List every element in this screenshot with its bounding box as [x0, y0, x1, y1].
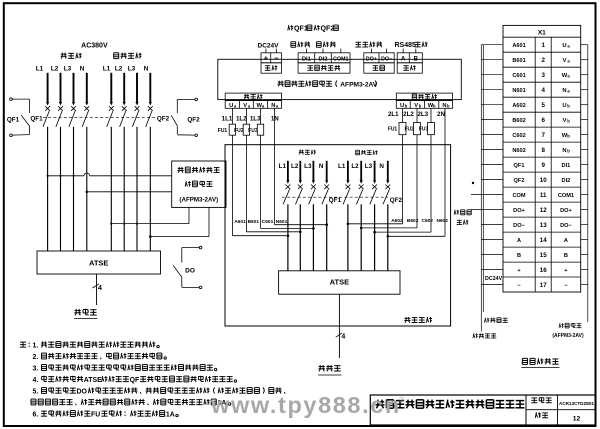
svg-text:L1: L1	[338, 163, 346, 170]
svg-text:ACR13CTDZ801: ACR13CTDZ801	[559, 401, 594, 406]
svg-text:DO: DO	[185, 268, 195, 275]
svg-text:1: 1	[541, 42, 545, 49]
svg-text:L2: L2	[291, 163, 299, 170]
svg-text:V: V	[563, 58, 567, 64]
svg-text:1A: 1A	[166, 412, 175, 419]
svg-text:X1: X1	[538, 29, 546, 36]
svg-text:U: U	[229, 103, 233, 109]
svg-text:12: 12	[573, 415, 581, 422]
svg-text:4.: 4.	[33, 377, 39, 384]
svg-text:N: N	[442, 103, 446, 109]
svg-text:www.tpy888.cn: www.tpy888.cn	[210, 392, 401, 418]
svg-text:9: 9	[541, 162, 545, 169]
svg-text:N: N	[80, 66, 85, 73]
svg-text:N: N	[562, 88, 566, 94]
svg-text:14: 14	[540, 237, 547, 244]
svg-text:QF2: QF2	[321, 25, 335, 33]
svg-text:2L1: 2L1	[388, 111, 399, 118]
svg-text:7: 7	[541, 132, 545, 139]
svg-text:®: ®	[399, 396, 405, 404]
svg-text:B: B	[564, 253, 568, 259]
svg-text:L1: L1	[279, 163, 287, 170]
svg-text:QF2: QF2	[187, 116, 200, 123]
svg-text:FU1: FU1	[218, 128, 228, 134]
svg-text:QF1: QF1	[514, 163, 525, 169]
svg-text:L1: L1	[36, 66, 44, 73]
svg-text:B602: B602	[407, 218, 419, 224]
svg-text:FU2: FU2	[234, 128, 244, 134]
svg-text:1L1: 1L1	[222, 116, 233, 123]
svg-text:2.: 2.	[33, 354, 39, 361]
svg-text:A: A	[517, 238, 521, 244]
svg-text:4: 4	[541, 87, 545, 94]
svg-text:U: U	[562, 43, 566, 49]
svg-text:QF: QF	[130, 377, 140, 384]
svg-text:C601: C601	[512, 73, 525, 79]
svg-text:DO−: DO−	[560, 223, 572, 229]
svg-text:ATSE: ATSE	[89, 258, 108, 267]
svg-text:COM1: COM1	[558, 193, 574, 199]
svg-text:C602: C602	[512, 133, 525, 139]
svg-text:b: b	[419, 103, 422, 108]
svg-text:FU1: FU1	[388, 127, 398, 133]
svg-text:QF2: QF2	[390, 197, 403, 204]
svg-text:b: b	[567, 104, 570, 109]
svg-text:AC380V: AC380V	[81, 43, 108, 50]
svg-text:N: N	[379, 163, 384, 170]
svg-text:A602: A602	[391, 218, 403, 224]
svg-text:C601: C601	[262, 219, 274, 225]
svg-text:1L2: 1L2	[236, 116, 247, 123]
svg-text:DC24V: DC24V	[258, 43, 280, 50]
svg-text:V: V	[414, 103, 418, 109]
svg-text:L2: L2	[51, 66, 59, 73]
svg-text:RS485: RS485	[395, 42, 417, 49]
svg-text:L3: L3	[365, 163, 373, 170]
svg-text:L3: L3	[128, 66, 136, 73]
svg-text:QF2: QF2	[157, 115, 170, 122]
svg-text:b: b	[567, 148, 570, 153]
svg-text:2L3: 2L3	[417, 111, 428, 118]
svg-text:13: 13	[540, 222, 547, 229]
svg-text:11: 11	[540, 192, 547, 199]
svg-text:FU3: FU3	[419, 127, 429, 133]
svg-text:3.: 3.	[33, 366, 39, 373]
svg-text:4: 4	[98, 285, 102, 292]
svg-text:DO−: DO−	[513, 223, 525, 229]
svg-text:2L2: 2L2	[403, 111, 414, 118]
svg-text:QF1: QF1	[7, 116, 20, 123]
svg-text:DI1: DI1	[562, 163, 571, 169]
svg-text:B601: B601	[248, 219, 260, 225]
svg-text:L1: L1	[103, 66, 111, 73]
svg-text:B: B	[517, 253, 521, 259]
svg-text:b: b	[405, 103, 408, 108]
svg-text:DO+: DO+	[366, 57, 377, 63]
svg-text:DO: DO	[77, 389, 88, 396]
svg-text:FU3: FU3	[248, 128, 258, 134]
svg-text:DO+: DO+	[513, 208, 525, 214]
svg-text:1N: 1N	[271, 116, 279, 123]
svg-text:N: N	[271, 103, 275, 109]
svg-text:(AFPM3-2AV): (AFPM3-2AV)	[179, 197, 218, 204]
svg-text:QF1: QF1	[30, 115, 43, 122]
svg-text:A601: A601	[234, 219, 246, 225]
svg-text:DO−: DO−	[381, 57, 392, 63]
svg-text:N602: N602	[437, 218, 449, 224]
svg-text:b: b	[433, 103, 436, 108]
svg-text:5.: 5.	[33, 389, 39, 396]
svg-text:2: 2	[541, 57, 545, 64]
svg-text:COM1: COM1	[333, 57, 348, 63]
svg-text:N: N	[319, 163, 324, 170]
svg-text:(AFPM3-2AV): (AFPM3-2AV)	[552, 333, 584, 339]
svg-text:17: 17	[540, 282, 547, 289]
svg-text:b: b	[567, 118, 570, 123]
svg-text:L3: L3	[304, 163, 312, 170]
svg-text:A: A	[564, 238, 568, 244]
svg-text:10: 10	[540, 177, 547, 184]
svg-text:FU: FU	[91, 412, 100, 419]
svg-text:B602: B602	[512, 118, 525, 124]
svg-text:2N: 2N	[437, 111, 445, 118]
svg-text:5: 5	[541, 102, 545, 109]
svg-text:B601: B601	[512, 58, 525, 64]
svg-text:L3: L3	[64, 66, 72, 73]
svg-text:−: −	[274, 53, 279, 62]
svg-text:+: +	[264, 53, 269, 62]
svg-text:b: b	[447, 103, 450, 108]
svg-text:DI1: DI1	[302, 57, 312, 63]
svg-text:12: 12	[540, 207, 547, 214]
svg-text:A601: A601	[512, 43, 525, 49]
svg-text:15: 15	[540, 252, 547, 259]
svg-text:U: U	[562, 103, 566, 109]
svg-text:DC24V: DC24V	[485, 276, 503, 282]
svg-text:b: b	[567, 133, 570, 138]
svg-text:FU2: FU2	[404, 127, 414, 133]
svg-text:QF1: QF1	[329, 197, 342, 204]
svg-text:N: N	[562, 148, 566, 154]
svg-text:AFPM3-2AV: AFPM3-2AV	[340, 81, 377, 88]
svg-text:N601: N601	[276, 219, 288, 225]
svg-text:DO+: DO+	[560, 208, 572, 214]
svg-text:N602: N602	[512, 148, 525, 154]
svg-text:QF2: QF2	[514, 178, 525, 184]
svg-text:8: 8	[541, 147, 545, 154]
svg-text:16: 16	[540, 267, 547, 274]
svg-text:4: 4	[341, 333, 345, 340]
svg-text:A602: A602	[512, 103, 525, 109]
svg-text:N: N	[144, 66, 149, 73]
svg-text:QF1: QF1	[294, 25, 308, 33]
svg-text:U: U	[400, 103, 404, 109]
svg-text:3: 3	[541, 72, 545, 79]
svg-text:B: B	[414, 57, 419, 63]
svg-text:6.: 6.	[33, 412, 39, 419]
svg-text:N601: N601	[512, 88, 525, 94]
svg-text:1.: 1.	[33, 343, 39, 350]
svg-text:V: V	[563, 118, 567, 124]
svg-text:A: A	[401, 57, 406, 63]
svg-text:COM: COM	[512, 193, 525, 199]
svg-text:ATSE: ATSE	[84, 377, 102, 384]
svg-text:DI2: DI2	[318, 57, 327, 63]
svg-text:DI2: DI2	[562, 178, 571, 184]
svg-text:L2: L2	[115, 66, 123, 73]
svg-text:L2: L2	[351, 163, 359, 170]
svg-text:C602: C602	[422, 218, 434, 224]
svg-text:1L3: 1L3	[250, 116, 261, 123]
svg-text:V: V	[243, 103, 247, 109]
svg-text:6: 6	[541, 117, 545, 124]
svg-text:ATSE: ATSE	[330, 277, 349, 286]
